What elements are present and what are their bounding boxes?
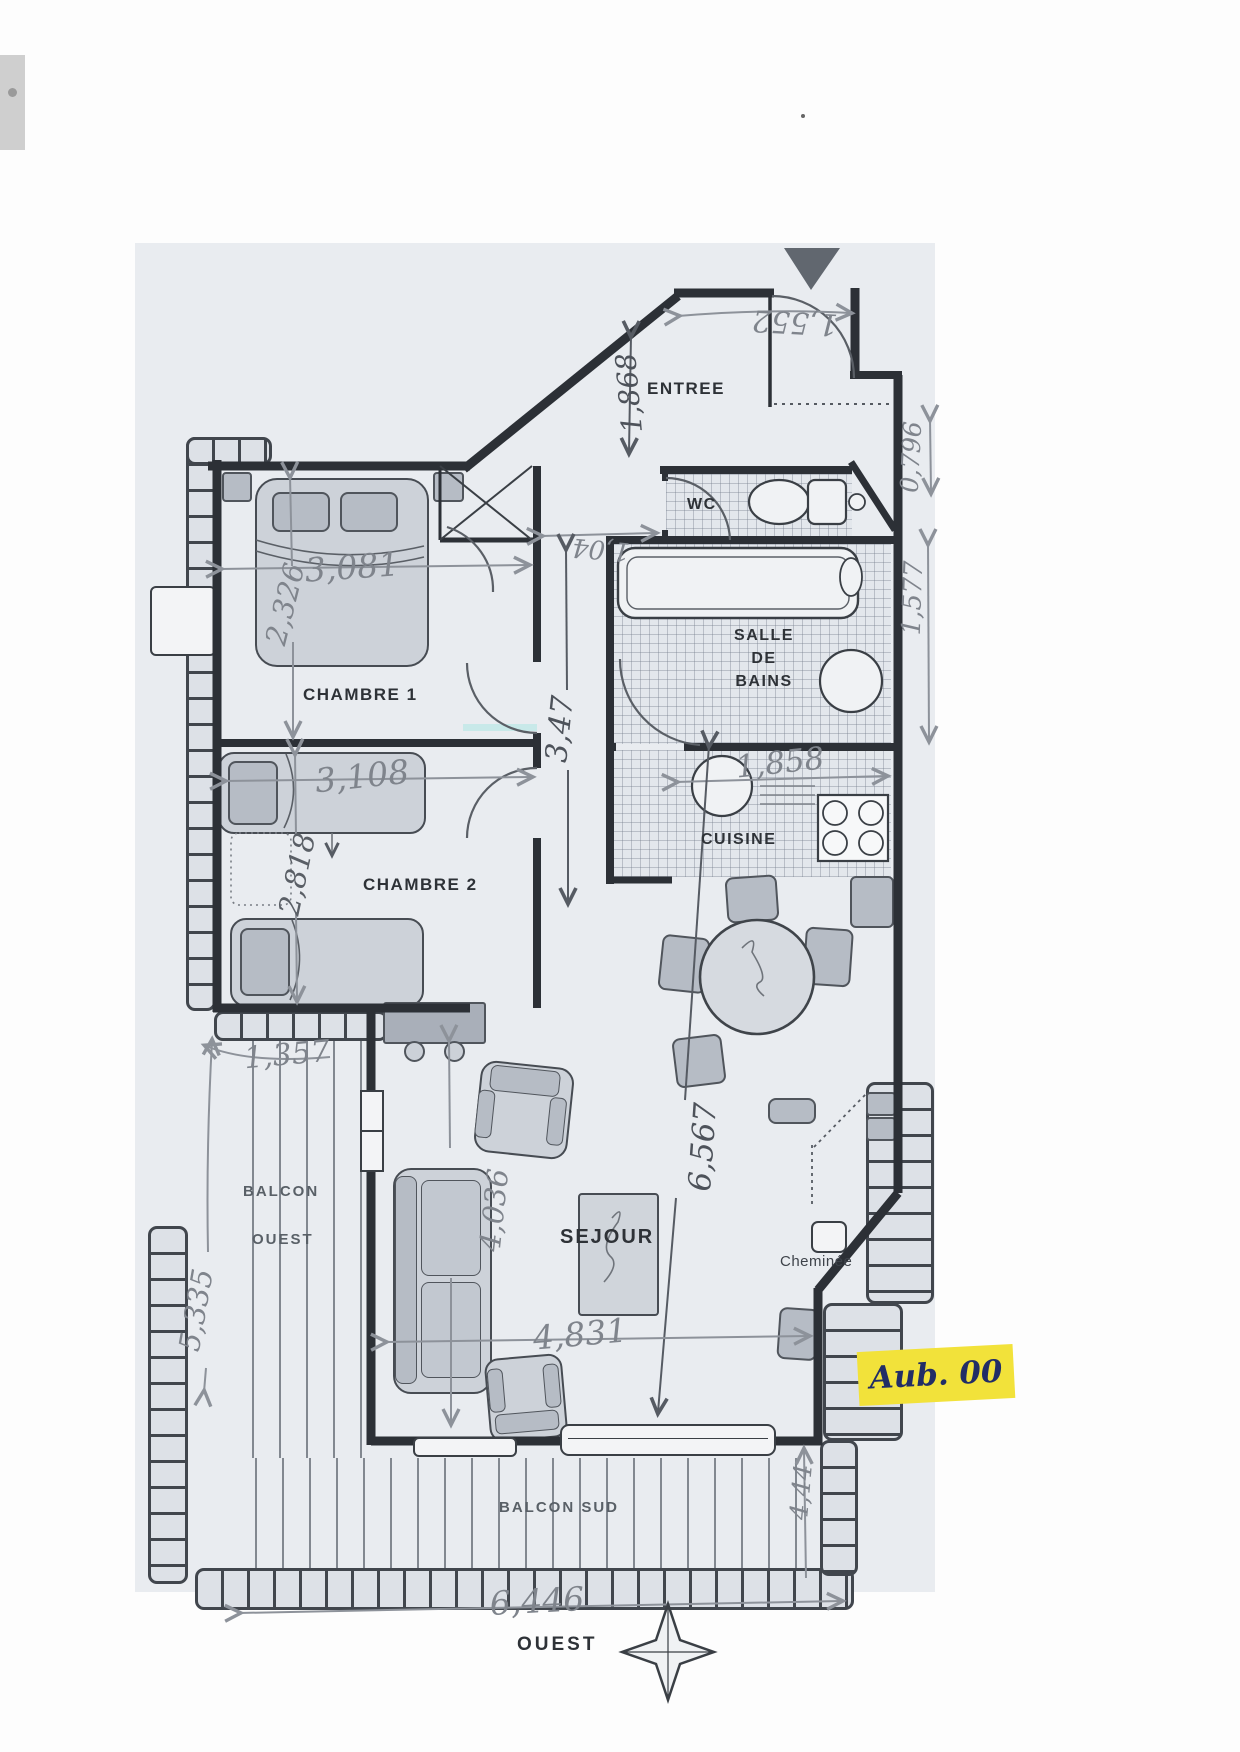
entrance-arrow-icon xyxy=(784,248,840,290)
dim-wc-depth: 0,796 xyxy=(895,421,928,494)
dim-chambre1-width: 3,081 xyxy=(304,544,401,589)
room-label-balcon-ouest-1: BALCON xyxy=(243,1183,319,1200)
highlighted-note-text: Aub. 00 xyxy=(869,1354,1004,1397)
window-sill-small xyxy=(413,1437,517,1457)
dim-sejour-width: 4,831 xyxy=(531,1310,629,1357)
dim-sejour-length: 6,567 xyxy=(682,1101,724,1192)
compass-rose-icon xyxy=(622,1604,714,1700)
room-label-chambre2: CHAMBRE 2 xyxy=(363,875,478,895)
room-label-chambre1: CHAMBRE 1 xyxy=(303,685,418,705)
window-sill xyxy=(560,1424,776,1456)
dim-balcon-ouest-width: 1,357 xyxy=(243,1034,332,1076)
dim-couloir-length: 3,47 xyxy=(539,694,581,764)
scanned-page: ENTREE WC SALLE DE BAINS CUISINE CHAMBRE… xyxy=(0,0,1240,1752)
highlighted-note: Aub. 00 xyxy=(857,1344,1016,1406)
dim-vestibule-width: 1,04 xyxy=(571,532,631,567)
room-label-entree: ENTREE xyxy=(647,379,725,399)
room-label-wc: WC xyxy=(687,496,717,514)
room-label-salle-de-bains: SALLE DE BAINS xyxy=(712,624,816,693)
dim-entree-depth: 1,868 xyxy=(609,352,649,435)
plan-linework xyxy=(0,0,1240,1752)
room-label-balcon-sud: BALCON SUD xyxy=(499,1499,619,1516)
room-label-cheminee: Cheminée xyxy=(780,1253,852,1270)
dim-balcon-sud-depth: 4,44 xyxy=(784,1463,818,1521)
french-door-leaf xyxy=(360,1130,384,1172)
compass-label: OUEST xyxy=(517,1634,597,1656)
dim-sdb-depth: 1,577 xyxy=(897,560,930,635)
dim-entry-top-width: 1,552 xyxy=(751,302,839,341)
room-label-sejour: SEJOUR xyxy=(560,1226,654,1249)
french-door-leaf xyxy=(360,1090,384,1132)
room-label-balcon-ouest-2: OUEST xyxy=(252,1231,314,1248)
room-label-cuisine: CUISINE xyxy=(701,831,776,849)
dim-balcon-sud-width: 6,446 xyxy=(489,1579,585,1623)
